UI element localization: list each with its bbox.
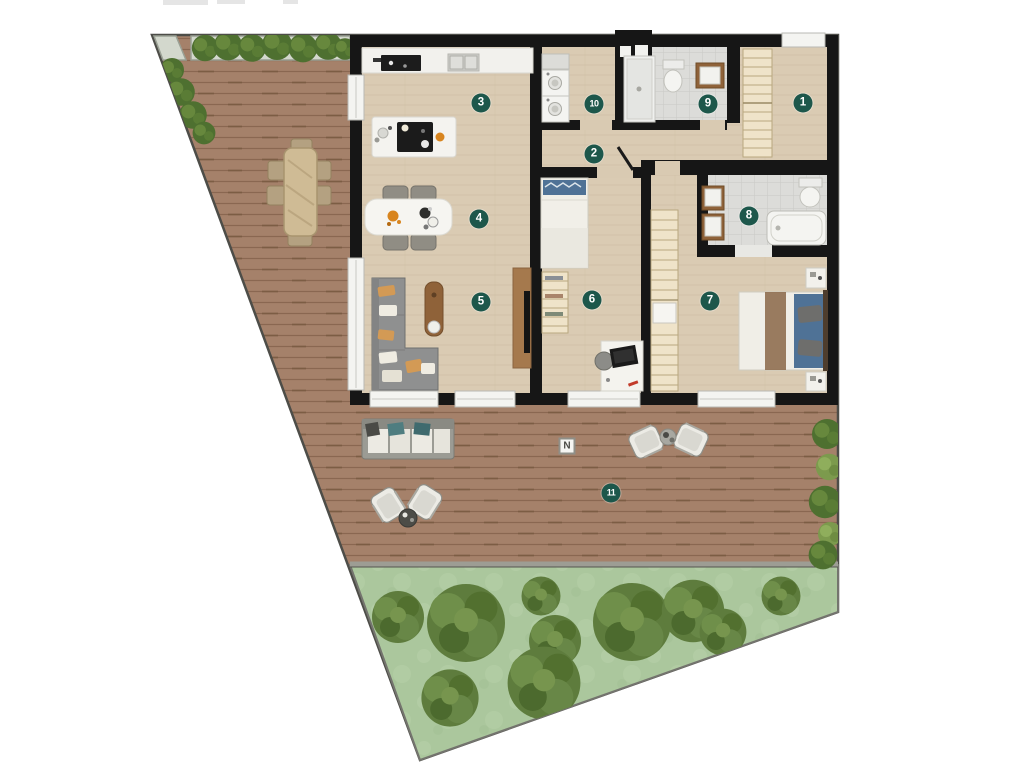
nightstand <box>806 268 826 288</box>
room-marker-11: 11 <box>602 484 621 503</box>
entrance-door <box>782 33 825 47</box>
toilet <box>664 70 682 92</box>
room-marker-4: 4 <box>470 210 489 229</box>
outdoor-sofa <box>362 419 454 459</box>
room-marker-10: 10 <box>585 95 604 114</box>
entrance-1 <box>743 49 772 157</box>
desk-chair <box>595 352 613 370</box>
laundry-10 <box>542 54 569 122</box>
room-marker-2: 2 <box>585 145 604 164</box>
room-marker-3: 3 <box>472 94 491 113</box>
toilet <box>800 187 820 207</box>
floor-plan-page: 1 2 3 4 5 6 7 8 9 10 11 N <box>0 0 1030 773</box>
sink <box>705 189 721 206</box>
sink <box>705 217 721 236</box>
sink <box>700 67 720 84</box>
room-marker-6: 6 <box>583 291 602 310</box>
tv <box>524 291 530 353</box>
room-marker-5: 5 <box>472 293 491 312</box>
room-marker-7: 7 <box>701 292 720 311</box>
north-indicator: N <box>559 438 576 455</box>
room-marker-9: 9 <box>699 95 718 114</box>
room-marker-8: 8 <box>740 207 759 226</box>
floor-plan-drawing <box>0 0 1030 773</box>
room-marker-1: 1 <box>794 94 813 113</box>
nightstand <box>806 372 826 391</box>
